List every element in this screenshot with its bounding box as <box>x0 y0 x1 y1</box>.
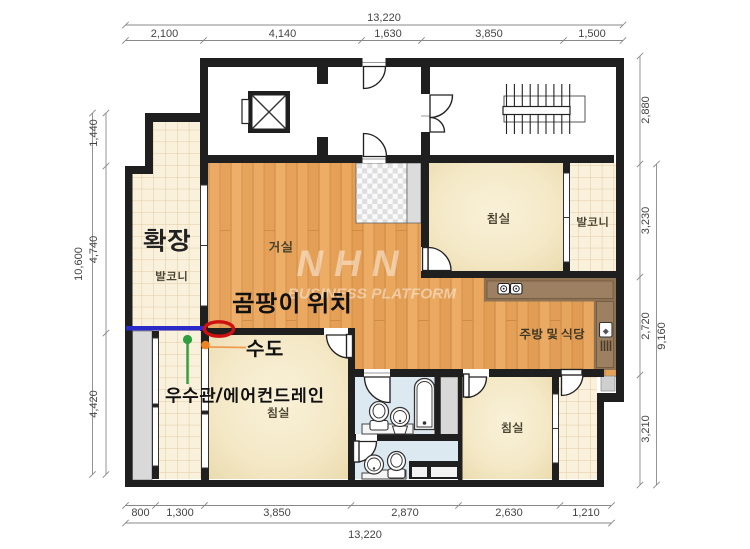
svg-text:2,630: 2,630 <box>495 507 523 519</box>
svg-text:3,230: 3,230 <box>640 207 652 235</box>
svg-text:10,600: 10,600 <box>73 247 85 281</box>
svg-text:1,440: 1,440 <box>88 119 100 147</box>
svg-text:4,140: 4,140 <box>269 28 297 40</box>
svg-text:4,740: 4,740 <box>88 236 100 264</box>
svg-text:13,220: 13,220 <box>367 12 401 24</box>
svg-text:13,220: 13,220 <box>348 529 382 541</box>
svg-text:9,160: 9,160 <box>656 322 668 350</box>
svg-text:1,210: 1,210 <box>572 507 600 519</box>
svg-text:2,100: 2,100 <box>151 28 179 40</box>
svg-text:2,720: 2,720 <box>640 312 652 340</box>
svg-text:1,630: 1,630 <box>374 28 402 40</box>
svg-text:3,210: 3,210 <box>640 415 652 443</box>
svg-text:1,300: 1,300 <box>166 507 194 519</box>
svg-text:3,850: 3,850 <box>263 507 291 519</box>
svg-text:2,880: 2,880 <box>640 96 652 124</box>
svg-text:NHN: NHN <box>296 243 409 284</box>
svg-text:3,850: 3,850 <box>475 28 503 40</box>
svg-text:800: 800 <box>131 507 149 519</box>
svg-text:2,870: 2,870 <box>391 507 419 519</box>
svg-text:1,500: 1,500 <box>578 28 606 40</box>
svg-text:4,420: 4,420 <box>88 390 100 418</box>
